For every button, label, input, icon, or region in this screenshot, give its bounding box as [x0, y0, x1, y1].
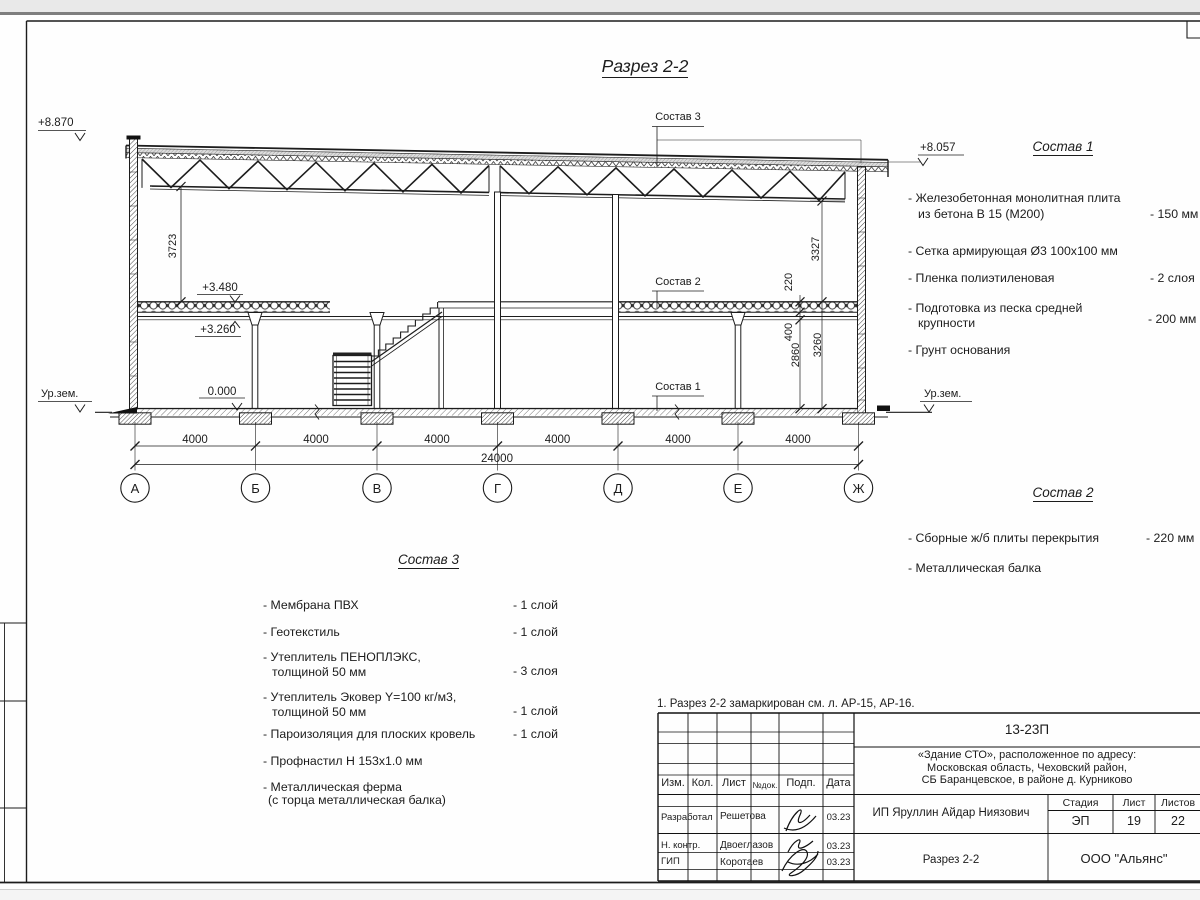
axis-bubble-e: Е: [724, 481, 752, 497]
sostav1-item-3-value: - 200 мм: [1148, 312, 1196, 327]
titleblock-stage-value: ЭП: [1048, 814, 1113, 830]
titleblock-row-0-date: 03.23: [823, 812, 854, 824]
dim-bay-3: 4000: [407, 433, 467, 447]
level-mark-roof-right: +8.057: [920, 141, 956, 155]
axis-bubble-zh: Ж: [845, 481, 873, 497]
sostav1-item-0-line1: - Железобетонная монолитная плита: [908, 191, 1120, 206]
sostav3-item-2-line1: - Утеплитель ПЕНОПЛЭКС,: [263, 650, 421, 665]
sostav1-item-0-line2: из бетона В 15 (М200): [918, 207, 1044, 222]
sostav3-item-3-line2: толщиной 50 мм: [272, 705, 366, 720]
axis-bubble-g: Г: [484, 481, 512, 497]
sostav3-item-0-line1: - Мембрана ПВХ: [263, 598, 359, 613]
sostav1-item-2-line1: - Пленка полиэтиленовая: [908, 271, 1054, 286]
dim-bay-2: 4000: [286, 433, 346, 447]
axis-bubble-v: В: [363, 481, 391, 497]
titleblock-sheet-value: 19: [1113, 814, 1155, 830]
staircase: [333, 302, 442, 406]
titleblock-sheet-name: Разрез 2-2: [854, 853, 1048, 867]
sostav3-item-3-line1: - Утеплитель Эковер Y=100 кг/м3,: [263, 690, 456, 705]
level-mark-ground-left: Ур.зем.: [41, 388, 78, 402]
titleblock-sheet-label: Лист: [1113, 797, 1155, 810]
sostav2-item-0-value: - 220 мм: [1146, 531, 1194, 546]
sostav3-item-2-line2: толщиной 50 мм: [272, 665, 366, 680]
titleblock-col-kol: Кол.: [688, 777, 717, 791]
sostav3-item-2-value: - 3 слоя: [513, 664, 558, 679]
sostav2-item-0-line1: - Сборные ж/б плиты перекрытия: [908, 531, 1099, 546]
sostav1-heading: Состав 1: [1018, 139, 1108, 156]
titleblock-sheets-value: 22: [1155, 814, 1200, 830]
sostav3-item-3-value: - 1 слой: [513, 704, 558, 719]
callout-sostav2: Состав 2: [650, 276, 706, 290]
sostav3-item-4-line1: - Пароизоляция для плоских кровель: [263, 727, 475, 742]
level-mark-ground-right: Ур.зем.: [924, 388, 961, 402]
titleblock-doc-number: 13-23П: [854, 722, 1200, 739]
level-mark-floor-zero: 0.000: [199, 385, 245, 399]
signature-developer: [784, 810, 816, 831]
titleblock-row-0-name: Решетова: [720, 811, 766, 824]
titleblock-row-1-name: Двоеглазов: [720, 840, 773, 853]
titleblock-object-line3: СБ Баранцевское, в районе д. Курниково: [854, 774, 1200, 788]
dim-3327: 3327: [810, 226, 822, 272]
drawing-sheet: Разрез 2-2 +8.870 +8.057 Ур.зем. Ур.зем.…: [0, 0, 1200, 900]
axis-bubble-a: А: [121, 481, 149, 497]
titleblock-row-2-date: 03.23: [823, 857, 854, 869]
level-marks: [38, 131, 972, 413]
sheet-title: Разрез 2-2: [520, 56, 770, 78]
signatures: [782, 810, 818, 876]
dim-3723: 3723: [167, 223, 179, 269]
titleblock-stage-label: Стадия: [1048, 797, 1113, 810]
sostav1-item-1-line1: - Сетка армирующая Ø3 100х100 мм: [908, 244, 1118, 259]
dim-bay-4: 4000: [528, 433, 588, 447]
sostav3-item-6-line2: (с торца металлическая балка): [268, 793, 446, 808]
level-mark-slab-top: +3.480: [197, 281, 243, 295]
sostav1-item-3-line2: крупности: [918, 316, 975, 331]
dim-2860: 2860: [790, 332, 802, 378]
axis-bubble-b: Б: [242, 481, 270, 497]
level-mark-beam-bottom: +3.260: [195, 323, 241, 337]
sostav1-item-0-value: - 150 мм: [1150, 207, 1198, 222]
dim-bay-1: 4000: [165, 433, 225, 447]
sostav3-heading: Состав 3: [381, 552, 476, 569]
sostav3-item-0-value: - 1 слой: [513, 598, 558, 613]
axis-bubble-d: Д: [604, 481, 632, 497]
titleblock-client: ИП Яруллин Айдар Ниязович: [854, 806, 1048, 820]
titleblock-col-podp: Подп.: [779, 777, 823, 791]
dim-bay-5: 4000: [648, 433, 708, 447]
dim-220: 220: [783, 259, 795, 305]
sostav1-item-3-line1: - Подготовка из песка средней: [908, 301, 1082, 316]
signature-control-gip: [782, 840, 818, 876]
ground-foundations: [95, 405, 932, 425]
dim-bay-6: 4000: [768, 433, 828, 447]
titleblock-organization: ООО "Альянс": [1048, 851, 1200, 867]
dim-3260: 3260: [812, 322, 824, 368]
titleblock-col-ndok: №док.: [751, 780, 779, 791]
titleblock-col-list: Лист: [717, 777, 751, 791]
titleblock-row-1-date: 03.23: [823, 841, 854, 853]
sostav3-item-4-value: - 1 слой: [513, 727, 558, 742]
callout-sostav1: Состав 1: [650, 381, 706, 395]
level-mark-roof-left: +8.870: [38, 116, 74, 130]
sostav2-item-1-line1: - Металлическая балка: [908, 561, 1041, 576]
titleblock-col-data: Дата: [823, 777, 854, 791]
titleblock-row-0-role: Разработал: [661, 812, 713, 824]
sostav1-item-4-line1: - Грунт основания: [908, 343, 1010, 358]
sostav2-heading: Состав 2: [1018, 485, 1108, 502]
sostav3-item-1-line1: - Геотекстиль: [263, 625, 340, 640]
sostav3-item-1-value: - 1 слой: [513, 625, 558, 640]
sheet-note: 1. Разрез 2-2 замаркирован см. л. АР-15,…: [657, 697, 915, 711]
sostav3-item-5-line1: - Профнастил Н 153х1.0 мм: [263, 754, 422, 769]
titleblock-row-1-role: Н. контр.: [661, 840, 700, 852]
titleblock-row-2-role: ГИП: [661, 856, 680, 868]
columns: [248, 192, 745, 409]
sostav1-item-2-value: - 2 слоя: [1150, 271, 1195, 286]
titleblock-sheets-label: Листов: [1155, 797, 1200, 810]
callout-sostav3: Состав 3: [650, 111, 706, 125]
floor-slab: [130, 302, 858, 320]
titleblock-col-izm: Изм.: [658, 777, 688, 791]
margin-table: [0, 623, 27, 882]
dim-total: 24000: [467, 452, 527, 466]
titleblock-row-2-name: Коротаев: [720, 857, 763, 870]
